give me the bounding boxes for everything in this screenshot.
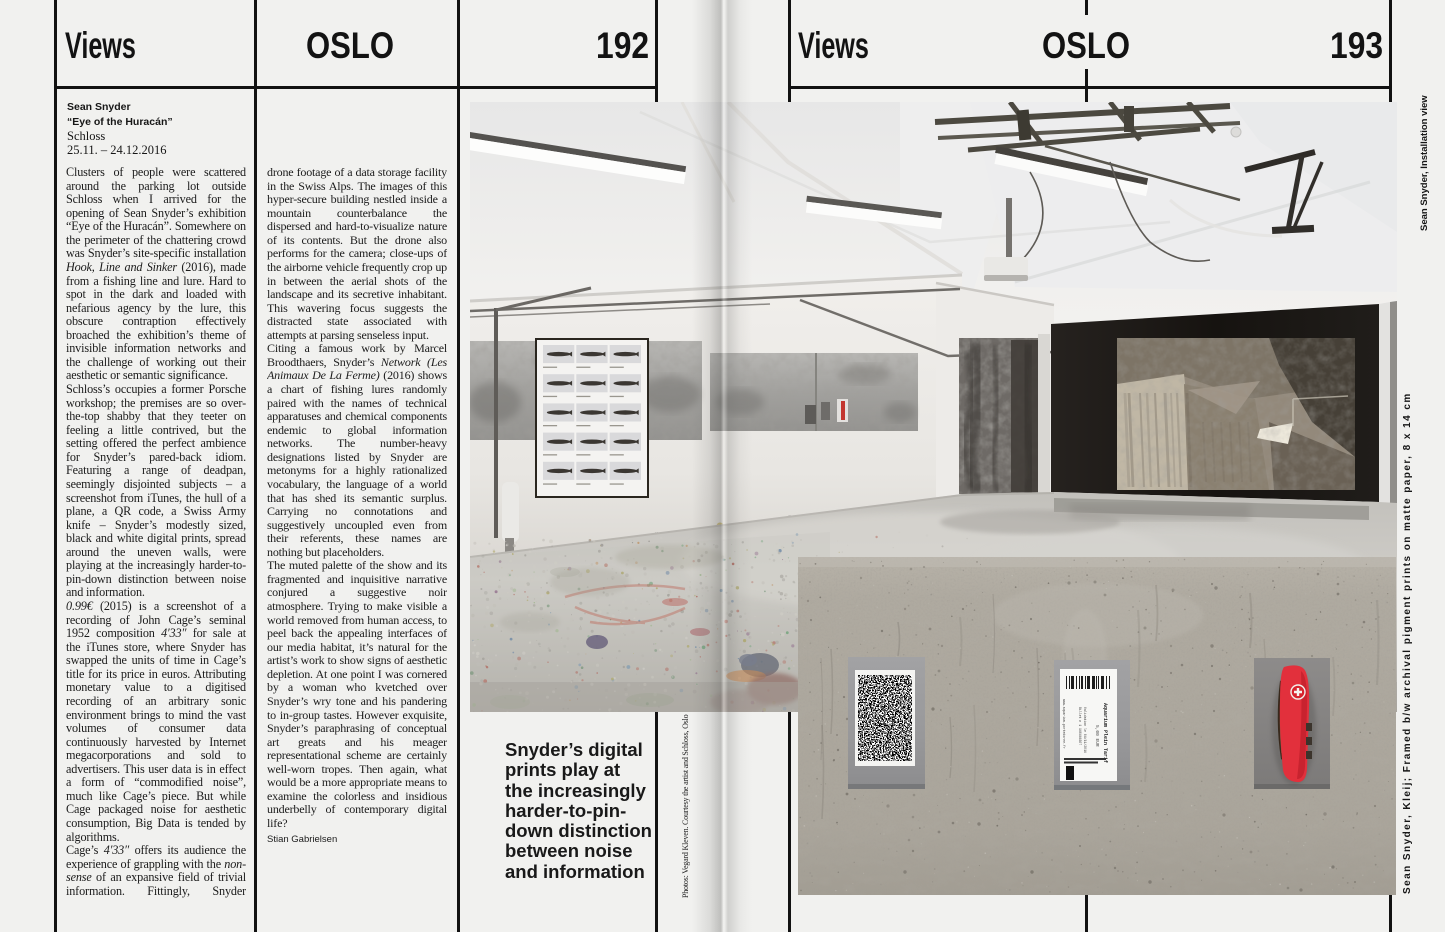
svg-text:Validation le 04/11/2016: Validation le 04/11/2016 — [1083, 707, 1087, 753]
svg-text:Aquarium Plein Tarif: Aquarium Plein Tarif — [1102, 703, 1108, 763]
svg-text:www.aquarium-portedoree.fr: www.aquarium-portedoree.fr — [1062, 699, 1066, 749]
svg-text:Billet n 1 160466307: Billet n 1 160466307 — [1078, 707, 1082, 745]
svg-text:5,00 EUR: 5,00 EUR — [1094, 725, 1100, 747]
